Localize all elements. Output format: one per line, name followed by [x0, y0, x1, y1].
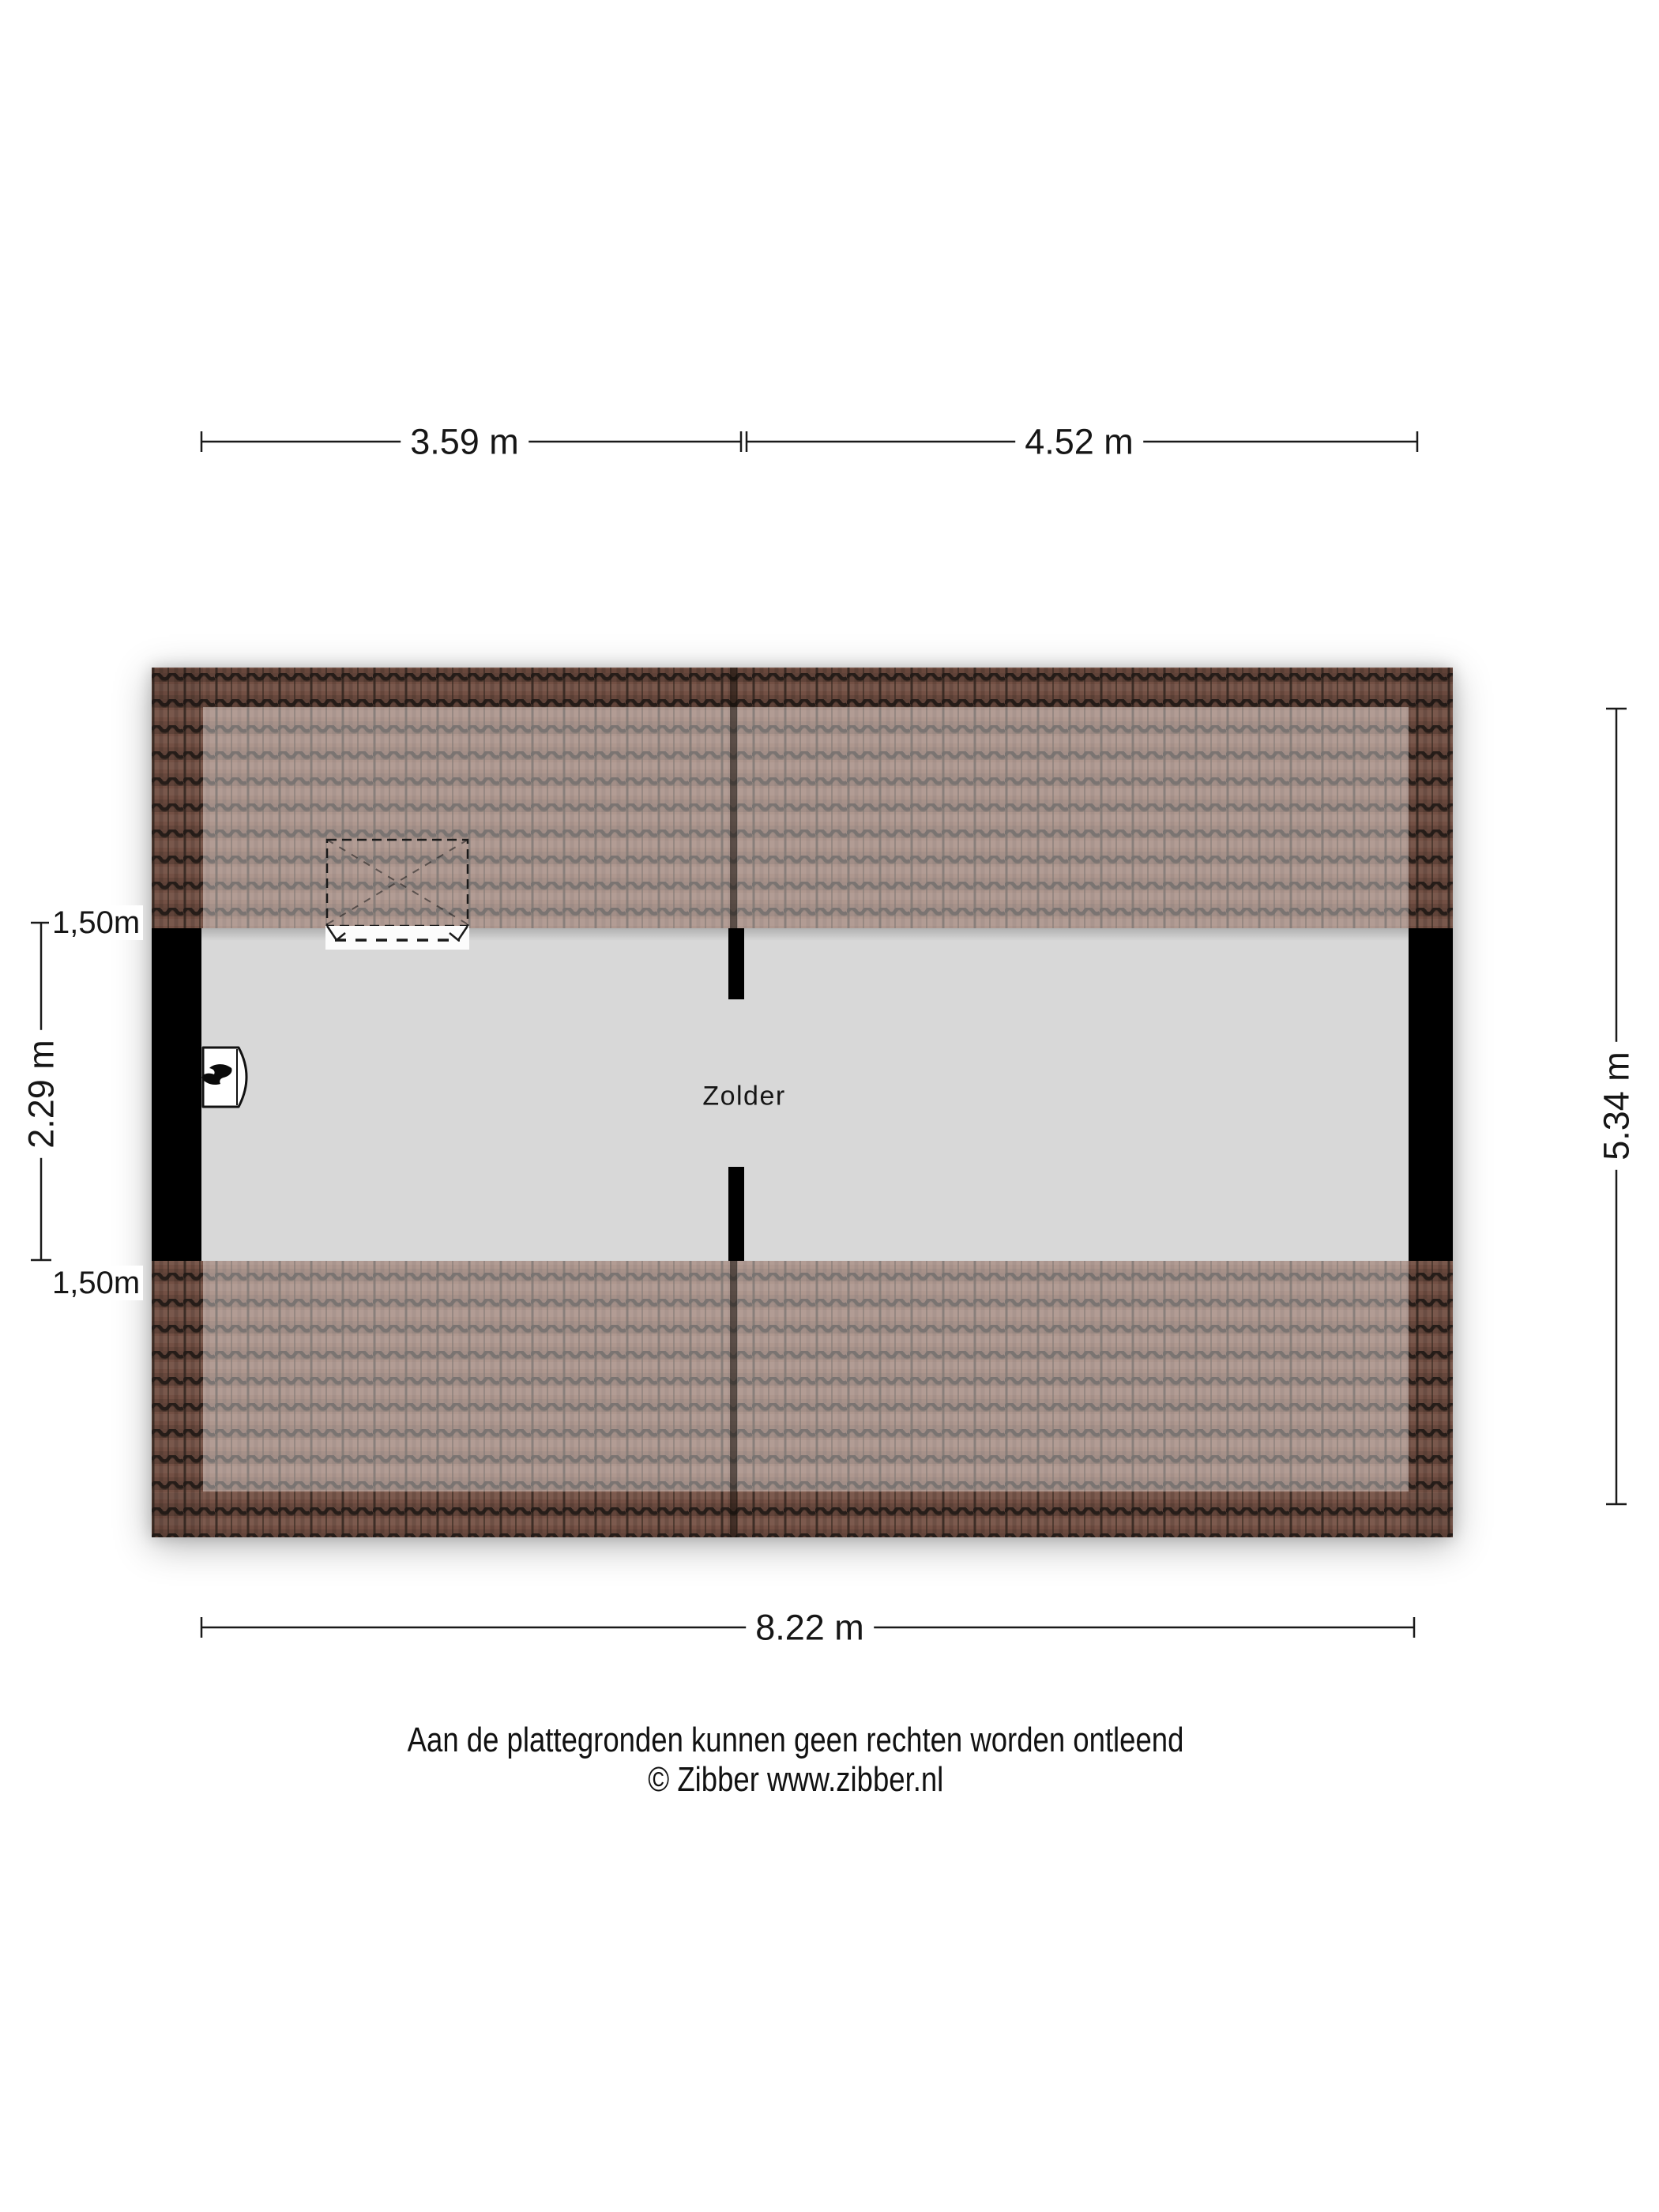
dim-left-height: 2.29 m — [21, 1030, 62, 1158]
wall-left — [152, 928, 201, 1261]
wall-partition-stub-top — [728, 928, 744, 999]
floorplan-page: 3.59 m 4.52 m 8.22 m 2.29 m 5.34 m 1,50m… — [0, 0, 1659, 2212]
dim-bottom-total: 8.22 m — [746, 1608, 874, 1648]
footer: Aan de plattegronden kunnen geen rechten… — [0, 1721, 1591, 1800]
wall-partition-stub-bottom — [728, 1167, 744, 1261]
partition-seam-top — [730, 668, 737, 928]
footer-disclaimer: Aan de plattegronden kunnen geen rechten… — [408, 1721, 1184, 1760]
wall-right — [1409, 928, 1453, 1261]
room-zolder — [152, 928, 1453, 1261]
roof-window-sill — [325, 926, 469, 950]
boiler — [201, 1048, 246, 1107]
dim-top-right: 4.52 m — [1015, 422, 1143, 462]
dim-right-depth: 5.34 m — [1597, 1042, 1637, 1170]
knee-wall-label-bottom: 1,50m — [49, 1266, 143, 1300]
floorplan-drawing — [0, 0, 1659, 2212]
footer-copyright: © Zibber www.zibber.nl — [648, 1760, 943, 1800]
room-name-label: Zolder — [702, 1082, 785, 1112]
knee-wall-label-top: 1,50m — [49, 905, 143, 940]
partition-seam-bottom — [730, 1261, 737, 1537]
dim-top-left: 3.59 m — [401, 422, 529, 462]
